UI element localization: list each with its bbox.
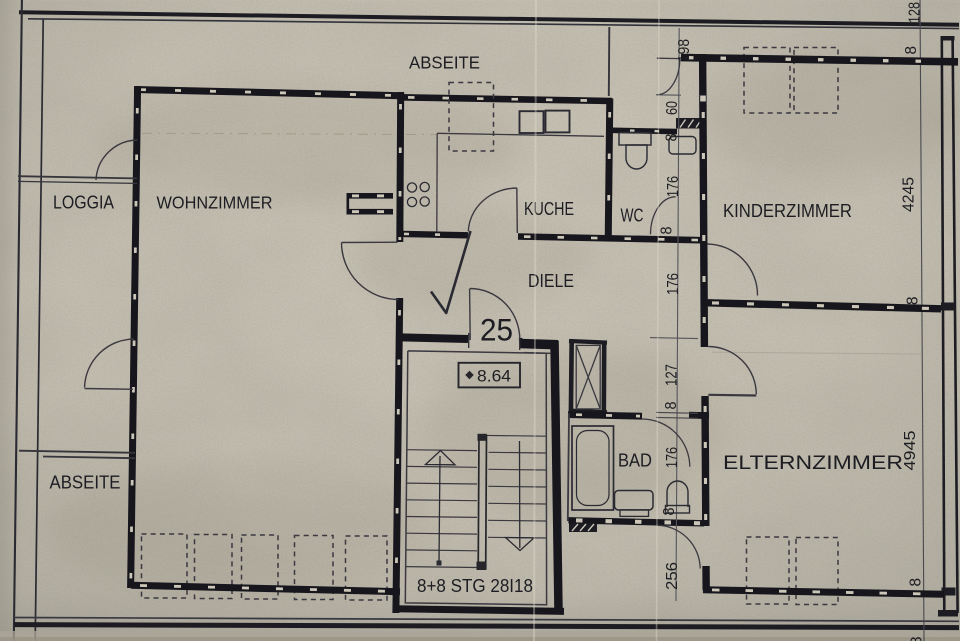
svg-text:LOGGIA: LOGGIA [53, 193, 114, 213]
svg-text:198: 198 [676, 39, 693, 62]
svg-text:256: 256 [664, 562, 681, 590]
svg-text:8.64: 8.64 [477, 367, 511, 386]
svg-text:8: 8 [663, 401, 680, 409]
svg-text:ABSEITE: ABSEITE [50, 472, 121, 493]
svg-text:8+8 STG 28I18: 8+8 STG 28I18 [417, 575, 533, 596]
svg-text:4945: 4945 [902, 430, 919, 470]
svg-text:8: 8 [661, 507, 678, 515]
svg-text:8: 8 [664, 133, 681, 141]
svg-text:128: 128 [907, 2, 924, 23]
svg-text:8: 8 [908, 578, 925, 587]
svg-text:WOHNZIMMER: WOHNZIMMER [157, 193, 273, 213]
svg-text:4245: 4245 [901, 177, 918, 212]
svg-text:ELTERNZIMMER: ELTERNZIMMER [723, 452, 903, 474]
svg-text:25: 25 [480, 312, 513, 348]
svg-text:ABSEITE: ABSEITE [409, 53, 480, 73]
svg-text:127: 127 [664, 364, 681, 386]
svg-text:WC: WC [621, 205, 644, 226]
svg-text:KINDERZIMMER: KINDERZIMMER [723, 200, 852, 221]
svg-text:BAD: BAD [618, 450, 652, 471]
svg-text:176: 176 [665, 273, 682, 295]
svg-text:176: 176 [665, 176, 682, 197]
svg-text:176: 176 [664, 447, 681, 468]
svg-text:8: 8 [909, 636, 926, 641]
svg-text:8: 8 [905, 296, 922, 305]
svg-text:8: 8 [903, 46, 920, 55]
svg-text:8: 8 [659, 226, 676, 234]
svg-text:60: 60 [664, 101, 681, 115]
svg-text:KUCHE: KUCHE [524, 199, 574, 219]
